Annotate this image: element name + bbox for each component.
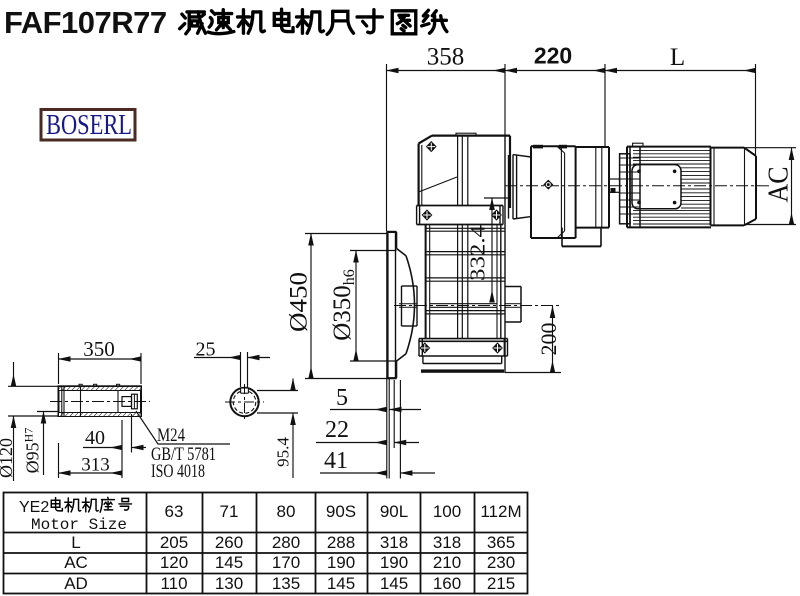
svg-text:41: 41 xyxy=(324,448,348,474)
svg-text:25: 25 xyxy=(196,339,216,361)
svg-text:215: 215 xyxy=(487,574,515,593)
svg-text:145: 145 xyxy=(380,574,408,593)
svg-text:200: 200 xyxy=(536,323,561,356)
svg-text:130: 130 xyxy=(215,574,243,593)
svg-text:365: 365 xyxy=(487,533,515,552)
svg-text:Ø450: Ø450 xyxy=(286,272,313,332)
svg-text:90S: 90S xyxy=(326,502,356,521)
svg-text:318: 318 xyxy=(433,533,461,552)
svg-text:230: 230 xyxy=(487,553,515,572)
svg-text:AC: AC xyxy=(763,167,795,203)
svg-text:280: 280 xyxy=(272,533,300,552)
svg-text:ISO 4018: ISO 4018 xyxy=(151,461,205,482)
svg-text:L: L xyxy=(71,533,80,552)
svg-text:Ø350h6: Ø350h6 xyxy=(329,269,358,341)
svg-text:358: 358 xyxy=(427,44,465,71)
svg-text:160: 160 xyxy=(433,574,461,593)
svg-text:63: 63 xyxy=(165,502,184,521)
svg-text:110: 110 xyxy=(160,574,187,593)
svg-text:BOSERL: BOSERL xyxy=(46,109,132,141)
svg-text:260: 260 xyxy=(215,533,243,552)
svg-text:40: 40 xyxy=(85,427,105,449)
svg-text:Ø120: Ø120 xyxy=(0,438,16,478)
svg-text:90L: 90L xyxy=(380,502,408,521)
svg-text:350: 350 xyxy=(83,337,115,361)
svg-text:190: 190 xyxy=(380,553,408,572)
svg-text:135: 135 xyxy=(272,574,300,593)
svg-text:332.4: 332.4 xyxy=(466,225,490,281)
svg-text:210: 210 xyxy=(433,553,461,572)
svg-text:318: 318 xyxy=(380,533,408,552)
svg-text:288: 288 xyxy=(327,533,355,552)
svg-text:145: 145 xyxy=(215,553,243,572)
svg-text:M24: M24 xyxy=(157,425,185,446)
svg-text:190: 190 xyxy=(327,553,355,572)
svg-text:220: 220 xyxy=(534,43,572,69)
svg-text:100: 100 xyxy=(433,502,461,521)
svg-text:L: L xyxy=(670,44,685,71)
svg-text:AD: AD xyxy=(64,574,88,593)
svg-text:22: 22 xyxy=(325,417,349,443)
svg-text:FAF107R77: FAF107R77 xyxy=(4,5,167,40)
svg-text:AC: AC xyxy=(64,553,88,572)
svg-text:112M: 112M xyxy=(480,502,521,521)
svg-text:5: 5 xyxy=(336,385,348,411)
svg-text:Motor Size: Motor Size xyxy=(31,516,127,534)
svg-text:YE2: YE2 xyxy=(19,499,49,516)
svg-text:80: 80 xyxy=(277,502,296,521)
svg-text:71: 71 xyxy=(220,502,239,521)
svg-text:205: 205 xyxy=(160,533,188,552)
svg-text:120: 120 xyxy=(160,553,188,572)
svg-text:95.4: 95.4 xyxy=(274,437,293,467)
svg-text:170: 170 xyxy=(272,553,300,572)
svg-text:313: 313 xyxy=(81,455,110,476)
svg-text:145: 145 xyxy=(327,574,355,593)
svg-text:Ø95H7: Ø95H7 xyxy=(22,428,43,474)
